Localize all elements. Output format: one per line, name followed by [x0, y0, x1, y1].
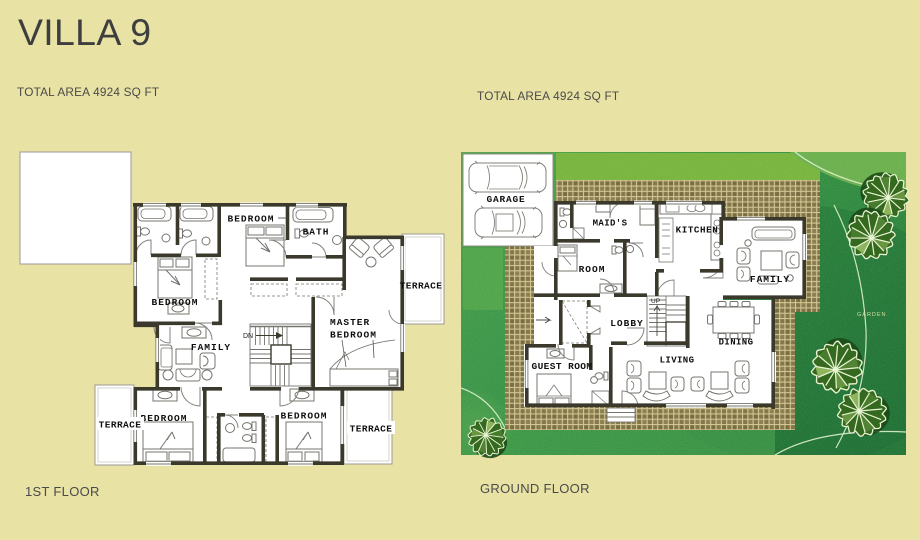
svg-text:TERRACE: TERRACE — [99, 420, 142, 431]
svg-text:LIVING: LIVING — [660, 356, 695, 366]
svg-text:TOTAL AREA 4924 SQ FT: TOTAL AREA 4924 SQ FT — [477, 89, 619, 103]
svg-text:KITCHEN: KITCHEN — [676, 225, 719, 236]
svg-text:DINING: DINING — [719, 338, 754, 348]
svg-text:BEDROOM: BEDROOM — [281, 411, 328, 422]
svg-text:1ST FLOOR: 1ST FLOOR — [25, 484, 100, 499]
svg-text:TERRACE: TERRACE — [350, 424, 393, 435]
svg-text:BEDROOM: BEDROOM — [152, 297, 199, 308]
svg-text:FAMILY: FAMILY — [191, 342, 231, 353]
svg-text:UP: UP — [651, 298, 660, 305]
svg-text:MAID'S: MAID'S — [593, 219, 628, 229]
svg-text:ROOM: ROOM — [579, 264, 606, 275]
svg-text:VILLA 9: VILLA 9 — [18, 11, 151, 53]
svg-text:FAMILY: FAMILY — [750, 274, 790, 285]
svg-text:MASTER: MASTER — [330, 317, 370, 328]
svg-text:DN: DN — [243, 333, 253, 340]
svg-text:BEDROOM: BEDROOM — [228, 214, 275, 225]
svg-text:BEDROOM: BEDROOM — [330, 330, 377, 341]
svg-text:LOBBY: LOBBY — [610, 318, 644, 329]
svg-text:BATH: BATH — [303, 227, 330, 238]
svg-text:TERRACE: TERRACE — [400, 281, 443, 292]
svg-text:GARAGE: GARAGE — [486, 194, 525, 205]
svg-text:TOTAL AREA 4924 SQ FT: TOTAL AREA 4924 SQ FT — [17, 85, 159, 99]
svg-text:GROUND FLOOR: GROUND FLOOR — [480, 481, 590, 496]
svg-text:BEDROOM: BEDROOM — [141, 413, 188, 424]
svg-text:GUEST ROOM: GUEST ROOM — [531, 361, 592, 372]
